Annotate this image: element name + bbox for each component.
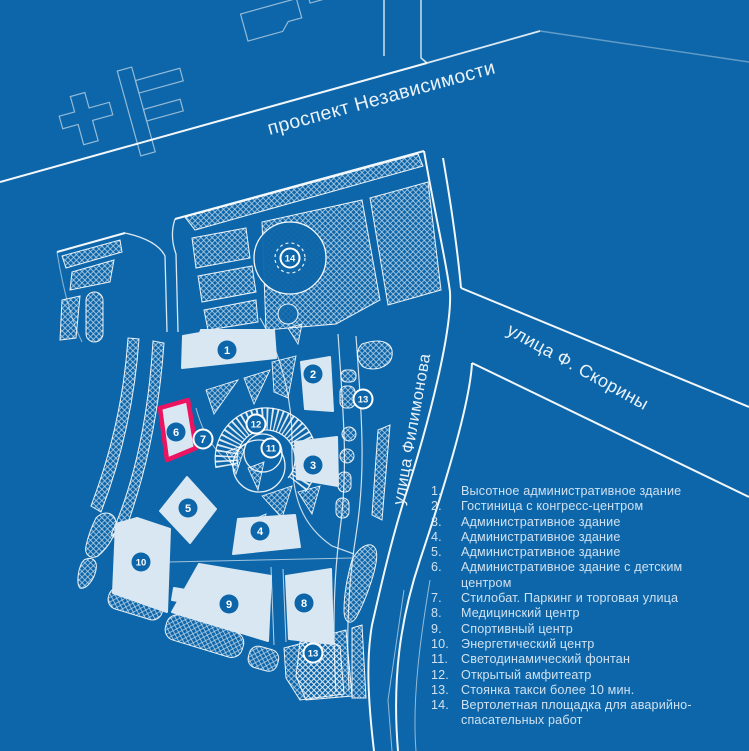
svg-text:12: 12 bbox=[251, 419, 262, 430]
legend: 1.Высотное административное здание2.Гост… bbox=[431, 484, 733, 729]
legend-item: 6.Административное здание с детским цент… bbox=[431, 560, 733, 591]
svg-text:14: 14 bbox=[285, 253, 296, 264]
marker-badge-10: 10 bbox=[132, 553, 151, 572]
legend-item: 12.Открытый амфитеатр bbox=[431, 668, 733, 683]
legend-item-number: 5. bbox=[431, 545, 461, 560]
legend-item: 1.Высотное административное здание bbox=[431, 484, 733, 499]
legend-item-number: 4. bbox=[431, 530, 461, 545]
svg-text:10: 10 bbox=[136, 557, 147, 568]
svg-text:9: 9 bbox=[226, 599, 232, 611]
legend-item-number: 6. bbox=[431, 560, 461, 591]
legend-item-text: Административное здание bbox=[461, 515, 711, 530]
legend-item-number: 2. bbox=[431, 499, 461, 514]
legend-item: 11.Светодинамический фонтан bbox=[431, 652, 733, 667]
legend-item: 5.Административное здание bbox=[431, 545, 733, 560]
svg-text:1: 1 bbox=[224, 345, 230, 357]
legend-item-text: Высотное административное здание bbox=[461, 484, 711, 499]
svg-text:8: 8 bbox=[301, 598, 307, 610]
legend-item: 13.Стоянка такси более 10 мин. bbox=[431, 683, 733, 698]
marker-badge-7: 7 bbox=[194, 430, 213, 449]
marker-badge-2: 2 bbox=[304, 365, 323, 384]
building-2 bbox=[301, 357, 333, 411]
legend-item-text: Стилобат. Паркинг и торговая улица bbox=[461, 591, 711, 606]
svg-text:4: 4 bbox=[257, 526, 264, 538]
svg-text:5: 5 bbox=[185, 503, 191, 515]
legend-item-number: 7. bbox=[431, 591, 461, 606]
legend-item-number: 9. bbox=[431, 622, 461, 637]
svg-text:6: 6 bbox=[173, 427, 179, 439]
site-plan-canvas: 123456789101112131314 проспект Независим… bbox=[0, 0, 749, 751]
legend-item: 9.Спортивный центр bbox=[431, 622, 733, 637]
street-label-filimonova: улица Филимонова bbox=[390, 352, 434, 507]
legend-item-text: Административное здание bbox=[461, 530, 711, 545]
marker-badge-4: 4 bbox=[251, 522, 270, 541]
city-blocks bbox=[44, 0, 362, 174]
legend-item: 7.Стилобат. Паркинг и торговая улица bbox=[431, 591, 733, 606]
legend-item: 4.Административное здание bbox=[431, 530, 733, 545]
svg-text:2: 2 bbox=[310, 369, 316, 381]
legend-item-number: 14. bbox=[431, 698, 461, 729]
street-label-skoriny: улица Ф. Скорины bbox=[504, 320, 652, 414]
svg-text:3: 3 bbox=[310, 460, 316, 472]
marker-badge-5: 5 bbox=[179, 499, 198, 518]
legend-item-number: 10. bbox=[431, 637, 461, 652]
marker-badge-12: 12 bbox=[247, 415, 266, 434]
marker-badge-9: 9 bbox=[220, 595, 239, 614]
marker-badge-1: 1 bbox=[218, 341, 237, 360]
marker-badge-3: 3 bbox=[304, 456, 323, 475]
legend-item-text: Медицинский центр bbox=[461, 606, 711, 621]
svg-text:13: 13 bbox=[308, 648, 319, 659]
park-greenery bbox=[60, 154, 441, 342]
legend-item-text: Спортивный центр bbox=[461, 622, 711, 637]
legend-item-text: Административное здание bbox=[461, 545, 711, 560]
marker-badge-11: 11 bbox=[262, 439, 281, 458]
legend-item-number: 1. bbox=[431, 484, 461, 499]
legend-item-text: Энергетический центр bbox=[461, 637, 711, 652]
svg-text:11: 11 bbox=[266, 443, 277, 454]
legend-item-text: Административное здание с детским центро… bbox=[461, 560, 711, 591]
legend-item-text: Стоянка такси более 10 мин. bbox=[461, 683, 711, 698]
marker-badge-8: 8 bbox=[295, 594, 314, 613]
legend-item-text: Гостиница с конгресс-центром bbox=[461, 499, 711, 514]
legend-item-number: 13. bbox=[431, 683, 461, 698]
legend-item: 14.Вертолетная площадка для аварийно-спа… bbox=[431, 698, 733, 729]
legend-item-text: Вертолетная площадка для аварийно-спасат… bbox=[461, 698, 711, 729]
legend-item-number: 11. bbox=[431, 652, 461, 667]
building-9-annex bbox=[172, 588, 186, 602]
marker-badge-13: 13 bbox=[304, 644, 323, 663]
legend-item-text: Светодинамический фонтан bbox=[461, 652, 711, 667]
legend-item: 8.Медицинский центр bbox=[431, 606, 733, 621]
legend-item-number: 3. bbox=[431, 515, 461, 530]
legend-item: 2.Гостиница с конгресс-центром bbox=[431, 499, 733, 514]
marker-badge-14: 14 bbox=[281, 249, 300, 268]
svg-text:7: 7 bbox=[200, 434, 206, 446]
legend-item: 10.Энергетический центр bbox=[431, 637, 733, 652]
legend-item: 3.Административное здание bbox=[431, 515, 733, 530]
marker-badge-13: 13 bbox=[354, 390, 373, 409]
legend-item-number: 12. bbox=[431, 668, 461, 683]
legend-item-number: 8. bbox=[431, 606, 461, 621]
marker-badge-6: 6 bbox=[167, 423, 186, 442]
legend-item-text: Открытый амфитеатр bbox=[461, 668, 711, 683]
svg-text:13: 13 bbox=[358, 394, 369, 405]
